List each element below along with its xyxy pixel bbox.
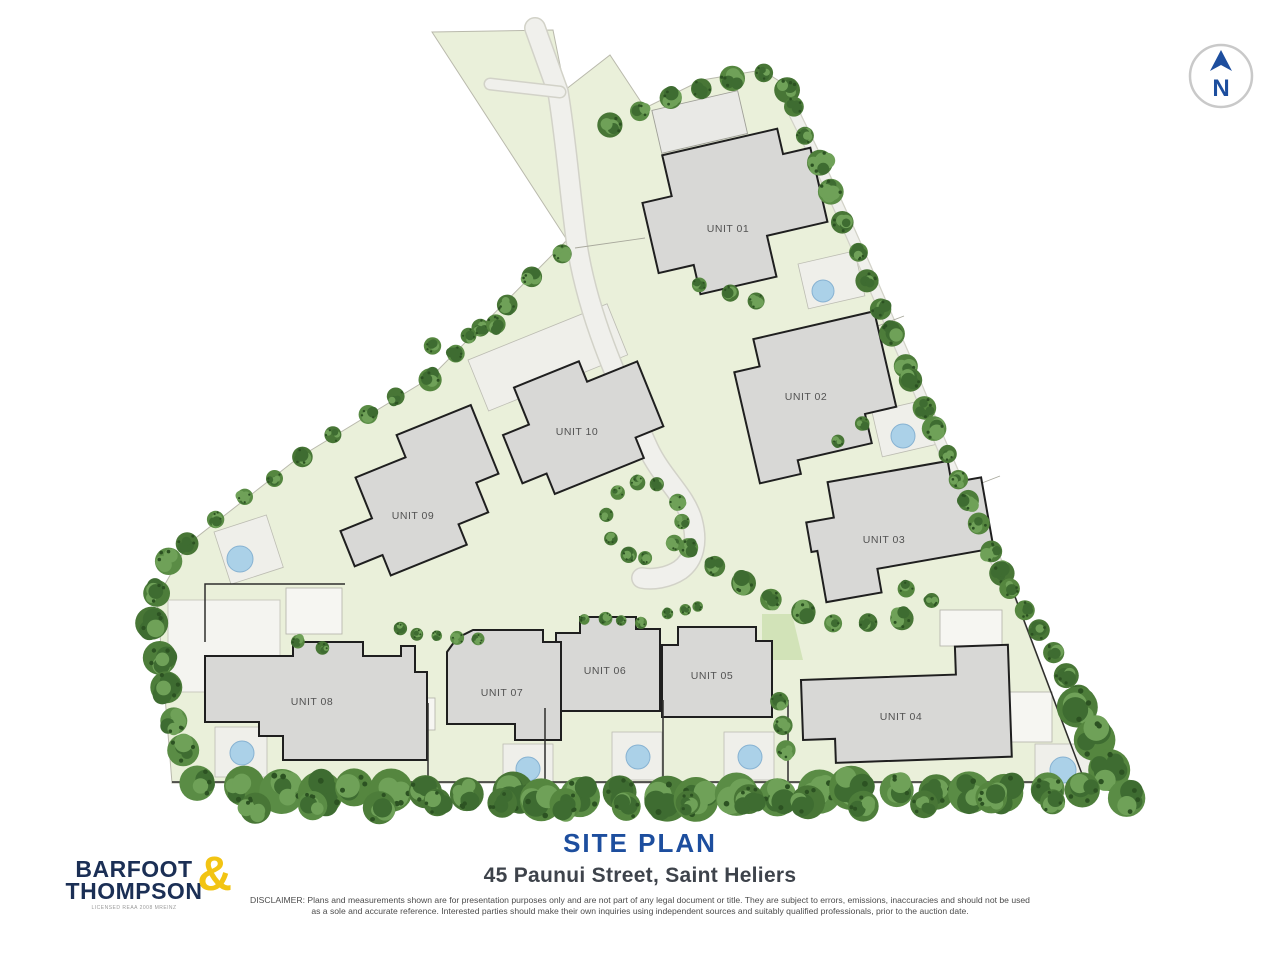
tree [1028, 619, 1050, 641]
tree [807, 150, 835, 176]
tree [579, 614, 590, 625]
tree [461, 328, 477, 344]
tree [831, 211, 854, 234]
tree [621, 547, 637, 563]
tree [674, 514, 689, 529]
pool [230, 741, 254, 765]
tree [704, 556, 725, 577]
site-plan-drawing: UNIT 01 UNIT 02 UNIT 03 UNIT 04 UNIT 05 … [0, 0, 1280, 960]
site-plan-page: UNIT 01 UNIT 02 UNIT 03 UNIT 04 UNIT 05 … [0, 0, 1280, 960]
tree [155, 548, 182, 575]
unit-09-label: UNIT 09 [392, 510, 434, 522]
tree [394, 622, 407, 635]
plan-address: 45 Paunui Street, Saint Heliers [0, 864, 1280, 888]
tree [999, 578, 1020, 599]
tree [419, 367, 442, 392]
tree [720, 66, 745, 91]
tree [176, 532, 199, 555]
tree [487, 788, 517, 818]
tree [179, 766, 215, 801]
tree [298, 791, 327, 820]
tree [855, 269, 878, 292]
tree [521, 267, 542, 288]
tree [784, 97, 804, 117]
tree [616, 615, 627, 626]
tree [1065, 772, 1100, 807]
tree [1015, 600, 1035, 620]
tree [1054, 663, 1079, 688]
tree [611, 485, 625, 499]
tree [968, 513, 990, 535]
tree [599, 612, 613, 626]
tree [859, 613, 878, 632]
tree [773, 716, 792, 735]
tree [207, 511, 224, 528]
pool [812, 280, 834, 302]
tree [266, 470, 283, 487]
tree [1043, 642, 1064, 663]
tree [676, 791, 701, 816]
pool [738, 745, 762, 769]
tree [899, 368, 922, 391]
unit-08-label: UNIT 08 [291, 696, 333, 708]
tree [796, 127, 814, 145]
unit-07-building [447, 630, 561, 740]
tree [818, 179, 844, 205]
shed [1008, 692, 1052, 742]
plan-title: SITE PLAN [0, 828, 1280, 859]
tree [599, 508, 613, 522]
tree [855, 416, 870, 431]
tree [638, 551, 652, 565]
tree [748, 293, 765, 310]
pool [227, 546, 253, 572]
pool [626, 745, 650, 769]
tree [324, 426, 341, 443]
tree [650, 477, 664, 491]
unit-06-label: UNIT 06 [584, 665, 626, 677]
tree [760, 589, 782, 611]
tree [913, 396, 937, 420]
tree [363, 791, 396, 824]
unit-10-label: UNIT 10 [556, 426, 598, 438]
tree [604, 532, 618, 546]
tree [292, 447, 313, 468]
tree [679, 538, 699, 558]
disclaimer-line-2: as a sole and accurate reference. Intere… [210, 906, 1070, 917]
tree [680, 604, 691, 615]
tree [432, 630, 443, 641]
unit-02-label: UNIT 02 [785, 391, 827, 403]
tree [692, 278, 707, 293]
footer-titles: SITE PLAN 45 Paunui Street, Saint Helier… [0, 828, 1280, 917]
tree [870, 298, 892, 319]
tree [450, 777, 484, 811]
unit-01-label: UNIT 01 [707, 223, 749, 235]
unit-07-label: UNIT 07 [481, 687, 523, 699]
tree [791, 600, 815, 624]
tree [910, 790, 938, 818]
tree [424, 337, 441, 354]
unit-05-label: UNIT 05 [691, 670, 733, 682]
tree [597, 112, 622, 137]
tree [790, 785, 825, 819]
unit-04-label: UNIT 04 [880, 711, 922, 723]
unit-03-label: UNIT 03 [863, 534, 905, 546]
yard-pad [286, 588, 342, 634]
compass-label: N [1212, 75, 1229, 102]
tree [949, 470, 968, 489]
shed [940, 610, 1002, 646]
tree [1040, 789, 1065, 814]
tree [410, 628, 423, 641]
tree [722, 285, 739, 302]
unit-07-footprint [447, 630, 561, 740]
tree [1108, 780, 1145, 817]
tree [423, 789, 452, 817]
tree [236, 489, 254, 505]
tree [770, 692, 788, 710]
tree [922, 416, 947, 441]
disclaimer-line-1: DISCLAIMER: Plans and measurements shown… [210, 895, 1070, 906]
tree [660, 86, 682, 109]
tree [849, 243, 868, 262]
tree [612, 792, 641, 821]
tree [755, 64, 774, 83]
pool [891, 424, 915, 448]
tree [824, 614, 842, 632]
tree [450, 631, 464, 645]
tree [692, 601, 703, 612]
tree [553, 244, 572, 263]
tree [316, 641, 330, 655]
tree [848, 791, 879, 822]
tree [975, 782, 1007, 814]
compass: N [1190, 45, 1252, 107]
tree [939, 445, 957, 463]
